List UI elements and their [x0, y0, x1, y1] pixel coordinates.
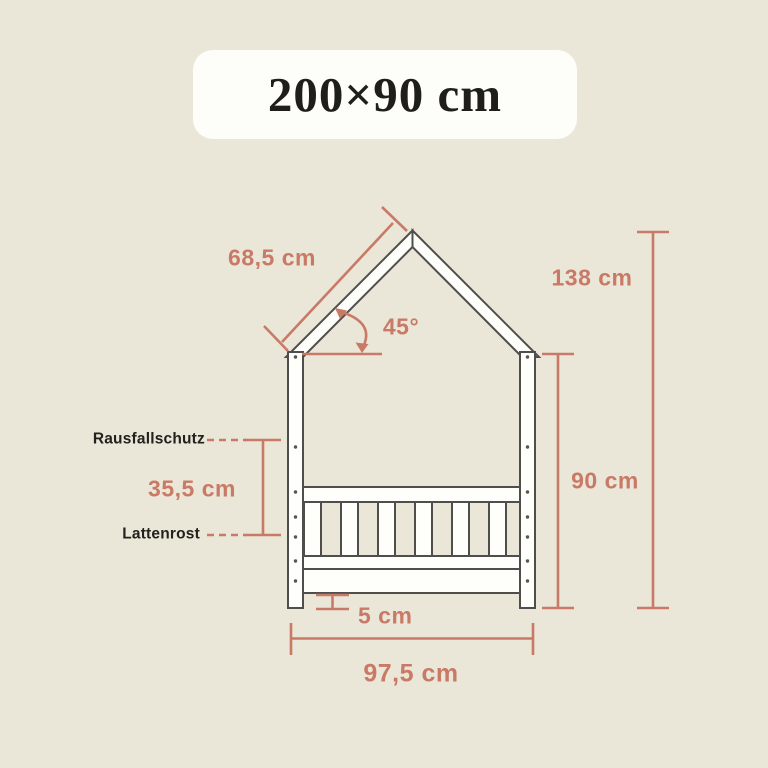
screw-dot	[294, 515, 297, 518]
screw-dot	[294, 535, 297, 538]
screw-dot	[294, 490, 297, 493]
guard-top-rail	[303, 487, 520, 502]
label-roof-slope: 68,5 cm	[228, 247, 316, 270]
dim-outer-width	[291, 623, 533, 655]
screw-dot	[526, 445, 529, 448]
dim-wall-height	[542, 354, 574, 608]
screw-dot	[526, 535, 529, 538]
guard-slat	[304, 502, 321, 556]
screw-dot	[294, 579, 297, 582]
guard-slat	[341, 502, 358, 556]
arrowhead-down-icon	[356, 343, 369, 354]
label-wall-height: 90 cm	[571, 470, 639, 493]
dim-floor-clearance	[316, 595, 349, 609]
screw-dot	[526, 579, 529, 582]
post-right	[520, 352, 535, 608]
screw-dot	[294, 559, 297, 562]
roof-right-rafter	[413, 231, 540, 358]
screw-dot	[294, 445, 297, 448]
guard-slat	[452, 502, 469, 556]
guard-slat	[489, 502, 506, 556]
post-left	[288, 352, 303, 608]
label-outer-width: 97,5 cm	[363, 662, 458, 687]
guard-bottom-rail	[303, 556, 520, 569]
label-guard-height: 35,5 cm	[148, 478, 236, 501]
screw-dot	[526, 559, 529, 562]
label-rausfallschutz: Rausfallschutz	[93, 431, 205, 447]
dim-total-height	[637, 232, 669, 608]
screw-dot	[526, 515, 529, 518]
label-lattenrost: Lattenrost	[122, 526, 200, 542]
label-roof-angle: 45°	[383, 316, 419, 339]
bed-side-board	[303, 569, 520, 593]
page-background: 200×90 cm	[0, 0, 768, 768]
screw-dot	[526, 355, 529, 358]
label-floor-clearance: 5 cm	[358, 605, 412, 628]
screw-dot	[526, 490, 529, 493]
bed-diagram	[0, 0, 768, 768]
guard-slat	[415, 502, 432, 556]
guard-slat	[378, 502, 395, 556]
screw-dot	[294, 355, 297, 358]
label-total-height: 138 cm	[551, 267, 632, 290]
bed-frame	[286, 231, 539, 609]
